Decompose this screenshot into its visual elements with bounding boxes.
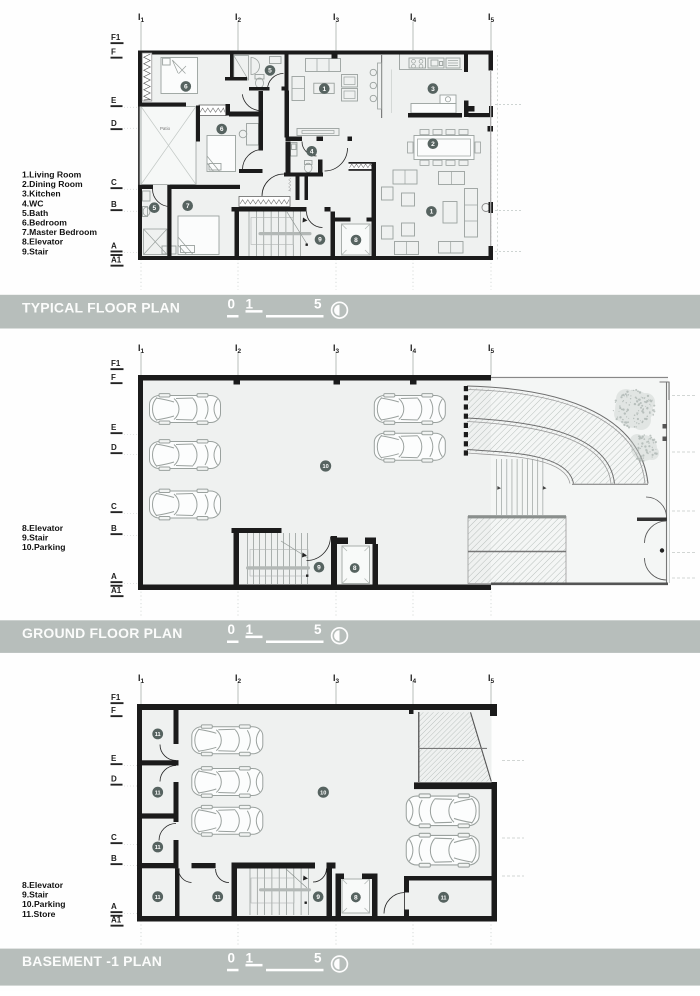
svg-text:5: 5 <box>314 297 322 312</box>
svg-text:5: 5 <box>491 348 495 355</box>
svg-text:D: D <box>111 119 117 128</box>
svg-text:1: 1 <box>430 209 434 216</box>
svg-text:A1: A1 <box>111 586 122 595</box>
svg-text:10.Parking: 10.Parking <box>22 899 65 909</box>
svg-text:8.Elevator: 8.Elevator <box>22 237 64 247</box>
svg-text:8: 8 <box>353 565 357 572</box>
svg-text:2: 2 <box>238 348 242 355</box>
svg-text:C: C <box>111 178 117 187</box>
svg-text:9.Stair: 9.Stair <box>22 246 49 256</box>
svg-text:8.Elevator: 8.Elevator <box>22 880 64 890</box>
svg-text:4: 4 <box>413 678 417 685</box>
svg-text:A1: A1 <box>111 256 122 265</box>
svg-text:F1: F1 <box>111 359 121 368</box>
svg-text:5: 5 <box>314 951 322 966</box>
svg-text:C: C <box>111 833 117 842</box>
svg-text:7: 7 <box>186 203 190 210</box>
svg-text:5: 5 <box>268 68 272 75</box>
svg-text:E: E <box>111 754 117 763</box>
svg-text:1: 1 <box>246 951 254 966</box>
svg-text:9: 9 <box>316 894 320 901</box>
svg-text:3: 3 <box>431 86 435 93</box>
svg-text:8: 8 <box>354 895 358 902</box>
svg-text:4: 4 <box>413 17 417 24</box>
svg-text:Patio: Patio <box>160 126 171 131</box>
svg-text:5: 5 <box>491 678 495 685</box>
svg-text:1: 1 <box>322 86 326 93</box>
svg-text:E: E <box>111 423 117 432</box>
svg-text:1: 1 <box>141 678 145 685</box>
svg-text:4: 4 <box>310 149 314 156</box>
svg-text:9: 9 <box>317 564 321 571</box>
svg-text:1.Living Room: 1.Living Room <box>22 170 82 180</box>
svg-text:1: 1 <box>246 622 254 637</box>
svg-text:B: B <box>111 200 117 209</box>
svg-text:5: 5 <box>314 622 322 637</box>
svg-text:3: 3 <box>336 678 340 685</box>
svg-text:11: 11 <box>441 896 447 902</box>
svg-text:F: F <box>111 373 116 382</box>
svg-text:6: 6 <box>184 84 188 91</box>
svg-text:A: A <box>111 902 117 911</box>
svg-text:F: F <box>111 48 116 57</box>
svg-text:11: 11 <box>155 732 161 738</box>
svg-text:11.Store: 11.Store <box>22 909 56 919</box>
svg-text:9.Stair: 9.Stair <box>22 533 49 543</box>
svg-text:0: 0 <box>228 297 236 312</box>
svg-text:7.Master Bedroom: 7.Master Bedroom <box>22 227 97 237</box>
svg-text:10: 10 <box>322 464 328 470</box>
svg-text:B: B <box>111 524 117 533</box>
svg-text:A1: A1 <box>111 916 122 925</box>
svg-text:1: 1 <box>141 348 145 355</box>
svg-text:GROUND FLOOR PLAN: GROUND FLOOR PLAN <box>22 625 183 641</box>
svg-text:11: 11 <box>155 845 161 851</box>
svg-text:9.Stair: 9.Stair <box>22 890 49 900</box>
svg-text:10.Parking: 10.Parking <box>22 542 65 552</box>
svg-text:5.Bath: 5.Bath <box>22 208 48 218</box>
svg-text:11: 11 <box>155 895 161 901</box>
svg-text:TYPICAL FLOOR PLAN: TYPICAL FLOOR PLAN <box>22 299 180 315</box>
svg-text:1: 1 <box>246 297 254 312</box>
svg-text:2: 2 <box>431 141 435 148</box>
svg-text:5: 5 <box>491 17 495 24</box>
svg-text:4.WC: 4.WC <box>22 198 43 208</box>
svg-text:3: 3 <box>336 17 340 24</box>
svg-text:D: D <box>111 775 117 784</box>
svg-text:6: 6 <box>220 126 224 133</box>
svg-text:F: F <box>111 706 116 715</box>
svg-text:A: A <box>111 572 117 581</box>
svg-text:A: A <box>111 241 117 250</box>
svg-text:0: 0 <box>228 951 236 966</box>
svg-text:8.Elevator: 8.Elevator <box>22 523 64 533</box>
svg-text:2: 2 <box>238 17 242 24</box>
svg-text:9: 9 <box>318 237 322 244</box>
svg-text:4: 4 <box>413 348 417 355</box>
svg-text:2: 2 <box>238 678 242 685</box>
svg-text:D: D <box>111 443 117 452</box>
svg-text:1: 1 <box>141 17 145 24</box>
svg-text:11: 11 <box>155 790 161 796</box>
svg-text:C: C <box>111 502 117 511</box>
svg-text:F1: F1 <box>111 693 121 702</box>
svg-text:F1: F1 <box>111 33 121 42</box>
svg-text:2.Dining Room: 2.Dining Room <box>22 179 83 189</box>
svg-text:0: 0 <box>228 622 236 637</box>
svg-text:11: 11 <box>215 895 221 901</box>
svg-text:10: 10 <box>320 790 326 796</box>
svg-text:8: 8 <box>354 237 358 244</box>
svg-text:B: B <box>111 854 117 863</box>
svg-text:5: 5 <box>152 205 156 212</box>
svg-text:6.Bedroom: 6.Bedroom <box>22 218 67 228</box>
svg-text:3.Kitchen: 3.Kitchen <box>22 189 61 199</box>
svg-text:E: E <box>111 96 117 105</box>
svg-text:3: 3 <box>336 348 340 355</box>
svg-text:BASEMENT -1 PLAN: BASEMENT -1 PLAN <box>22 953 162 969</box>
